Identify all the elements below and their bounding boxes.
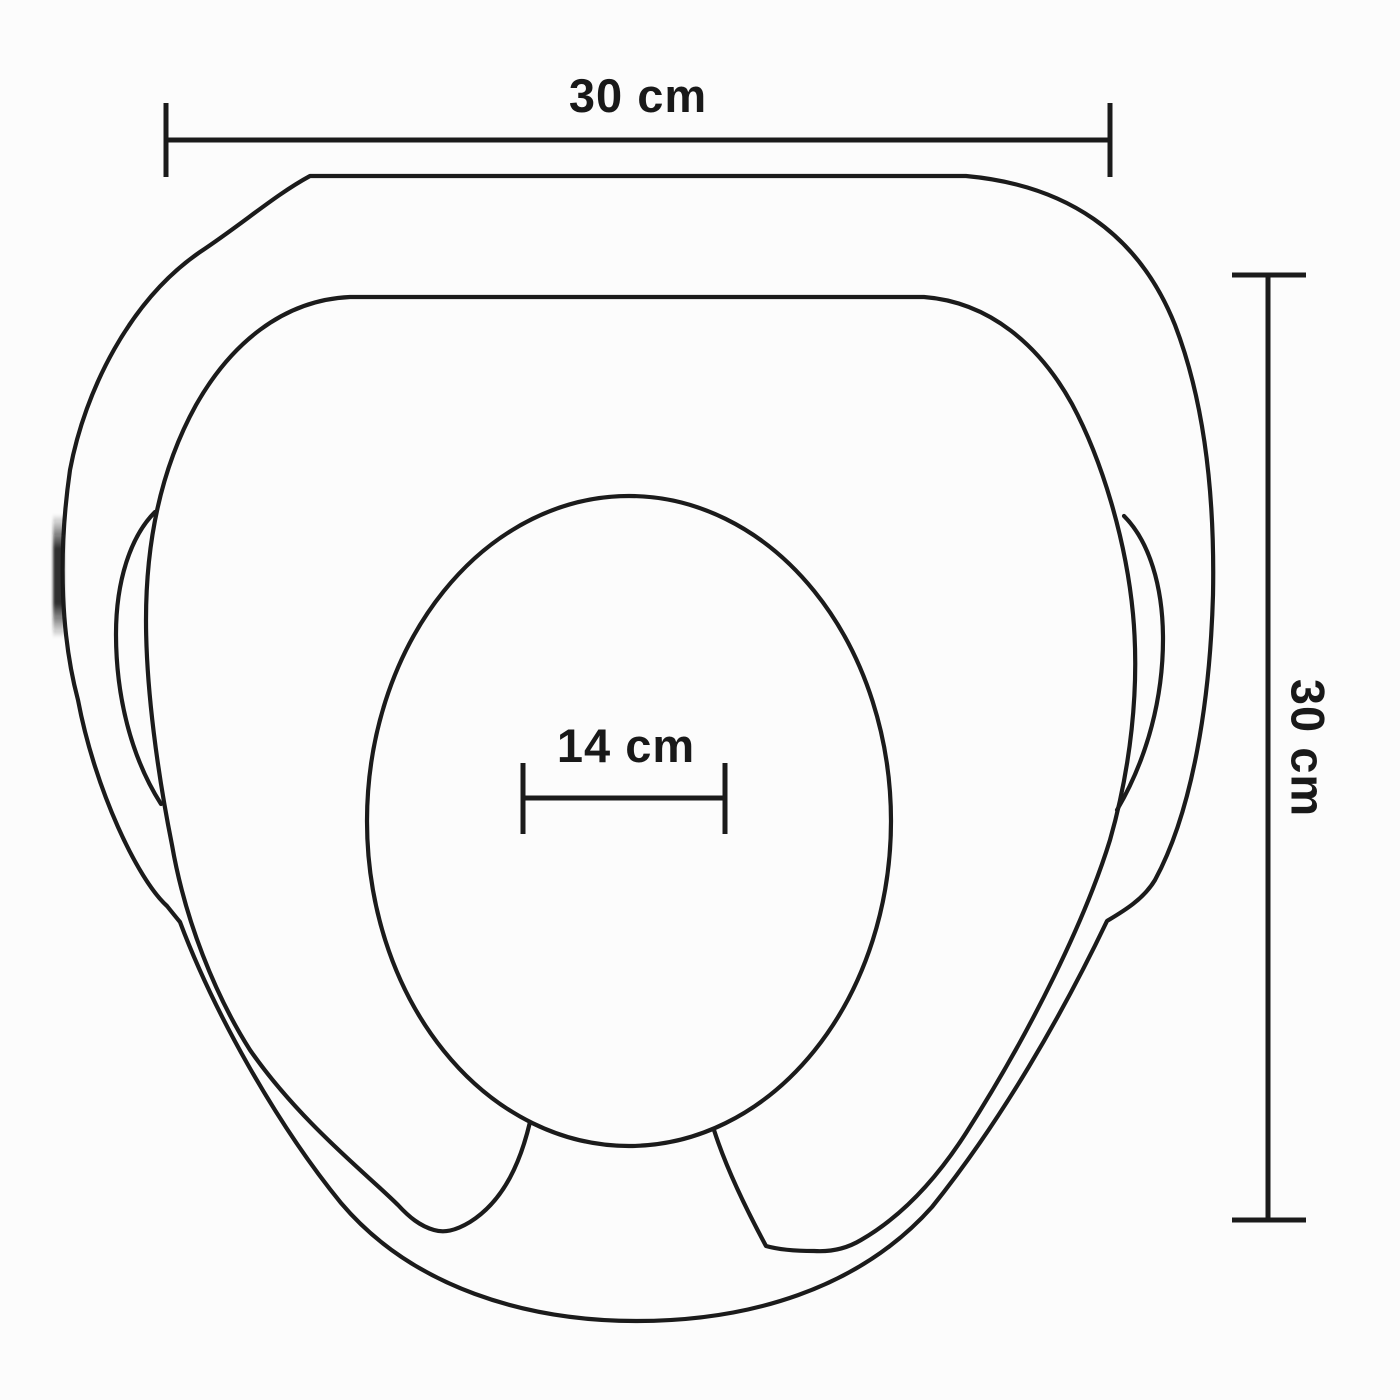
dimension-drawing: 30 cm 30 cm 14 cm [0, 0, 1400, 1400]
drawing-canvas: 30 cm 30 cm 14 cm [0, 0, 1400, 1400]
depth-dimension: 30 cm [1232, 275, 1335, 1220]
opening-oval [367, 496, 891, 1146]
width-dimension: 30 cm [166, 69, 1110, 177]
seat-ring-outline [146, 297, 1135, 1251]
print-artifact-smudge [53, 514, 64, 638]
left-handle-outline [116, 512, 161, 804]
opening-dimension: 14 cm [523, 719, 725, 834]
opening-dimension-label: 14 cm [557, 719, 695, 772]
width-dimension-label: 30 cm [569, 69, 707, 122]
depth-dimension-label: 30 cm [1282, 679, 1335, 817]
